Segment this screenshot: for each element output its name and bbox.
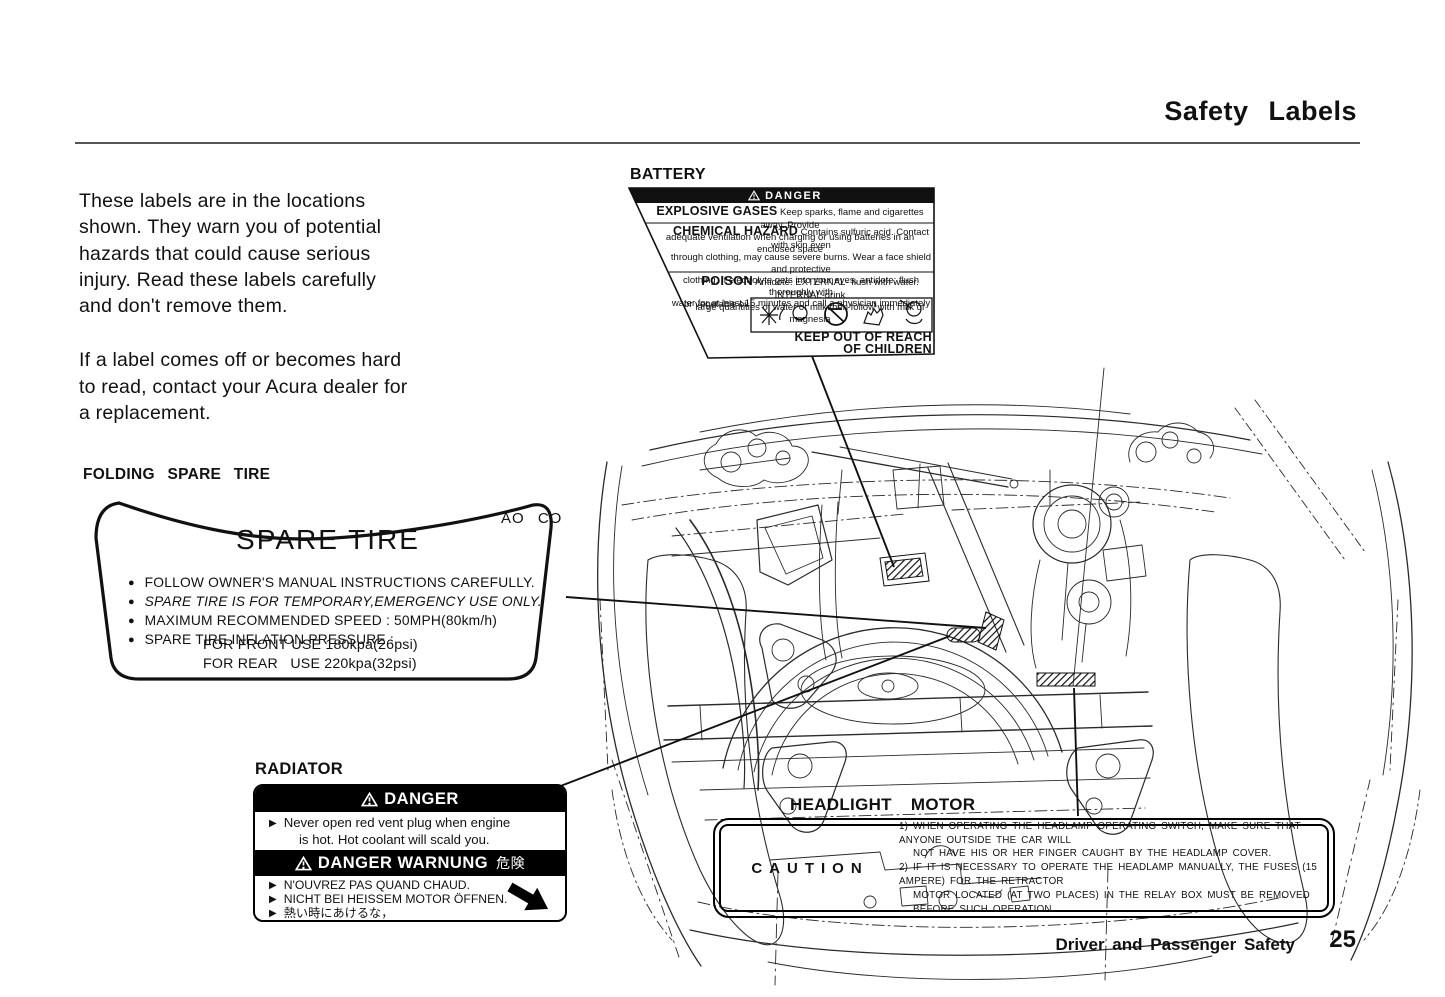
intro-text: These labels are in the locations shown.…	[79, 188, 407, 426]
radiator-english-warning: ▶Never open red vent plug when engine is…	[255, 812, 565, 850]
radiator-danger-bar: DANGER	[255, 786, 565, 812]
footer-section-title: Driver and Passenger Safety	[1055, 935, 1295, 955]
page-title: Safety Labels	[1164, 96, 1357, 127]
caution-text: 1) WHEN OPERATING THE HEADLAMP OPERATING…	[899, 820, 1327, 917]
wiper-arm	[812, 452, 1008, 487]
battery-location-marker	[885, 558, 923, 580]
radiator-leader-line	[558, 636, 950, 787]
intro-paragraph-1: These labels are in the locations shown.…	[79, 188, 407, 319]
radiator-location-marker	[947, 628, 980, 642]
prop-rod-line	[1073, 368, 1104, 686]
warning-triangle-icon	[748, 190, 760, 201]
caution-box: CAUTION 1) WHEN OPERATING THE HEADLAMP O…	[713, 818, 1335, 918]
spare-tire-title: SPARE TIRE	[143, 524, 513, 556]
battery-danger-text: DANGER	[765, 190, 822, 202]
spare-tire-label: FOLDING SPARE TIRE AO CO SPARE TIRE ●FOL…	[83, 466, 575, 692]
battery-label-body: DANGER EXPLOSIVE GASES Keep sparks, flam…	[628, 186, 938, 358]
radiator-warnung-bar: DANGER WARNUNG 危険	[255, 850, 565, 876]
radiator-kanji: 危険	[496, 853, 525, 873]
battery-danger-bar: DANGER	[636, 188, 934, 203]
caution-word: CAUTION	[721, 860, 899, 877]
battery-label: BATTERY	[628, 166, 938, 358]
footer-page-number: 25	[1329, 926, 1356, 954]
warning-triangle-icon	[361, 792, 378, 807]
radiator-heading: RADIATOR	[255, 760, 343, 779]
radiator-intl-warnings: ▶N'OUVREZ PAS QUAND CHAUD. ▶NICHT BEI HE…	[255, 876, 565, 920]
arrow-icon	[503, 881, 555, 917]
radiator-label-body: DANGER ▶Never open red vent plug when en…	[253, 784, 567, 922]
title-rule	[75, 142, 1360, 144]
headlight-motor-label: HEADLIGHT MOTOR CAUTION 1) WHEN OPERATIN…	[713, 795, 1337, 919]
battery-leader-line	[812, 356, 894, 567]
spare-tire-location-marker	[978, 612, 1004, 650]
battery-poison-line3: or vegetable oil	[684, 299, 748, 310]
spare-tire-rear-pressure: FOR REAR USE 220kpa(32psi)	[203, 656, 417, 672]
spare-tire-front-pressure: FOR FRONT USE 180kpa(26psi)	[203, 637, 418, 653]
headlight-motor-location-marker	[1037, 673, 1095, 686]
intro-paragraph-2: If a label comes off or becomes hard to …	[79, 347, 407, 426]
warning-triangle-icon	[295, 856, 312, 871]
battery-keep-out-text: KEEP OUT OF REACH OF CHILDREN	[794, 332, 932, 355]
radiator-label: RADIATOR DANGER ▶Never open red vent plu…	[253, 760, 568, 925]
battery-heading: BATTERY	[630, 166, 706, 184]
manual-page: Safety Labels These labels are in the lo…	[0, 0, 1445, 997]
headlight-motor-heading: HEADLIGHT MOTOR	[790, 795, 975, 815]
caution-box-inner: CAUTION 1) WHEN OPERATING THE HEADLAMP O…	[719, 824, 1329, 912]
